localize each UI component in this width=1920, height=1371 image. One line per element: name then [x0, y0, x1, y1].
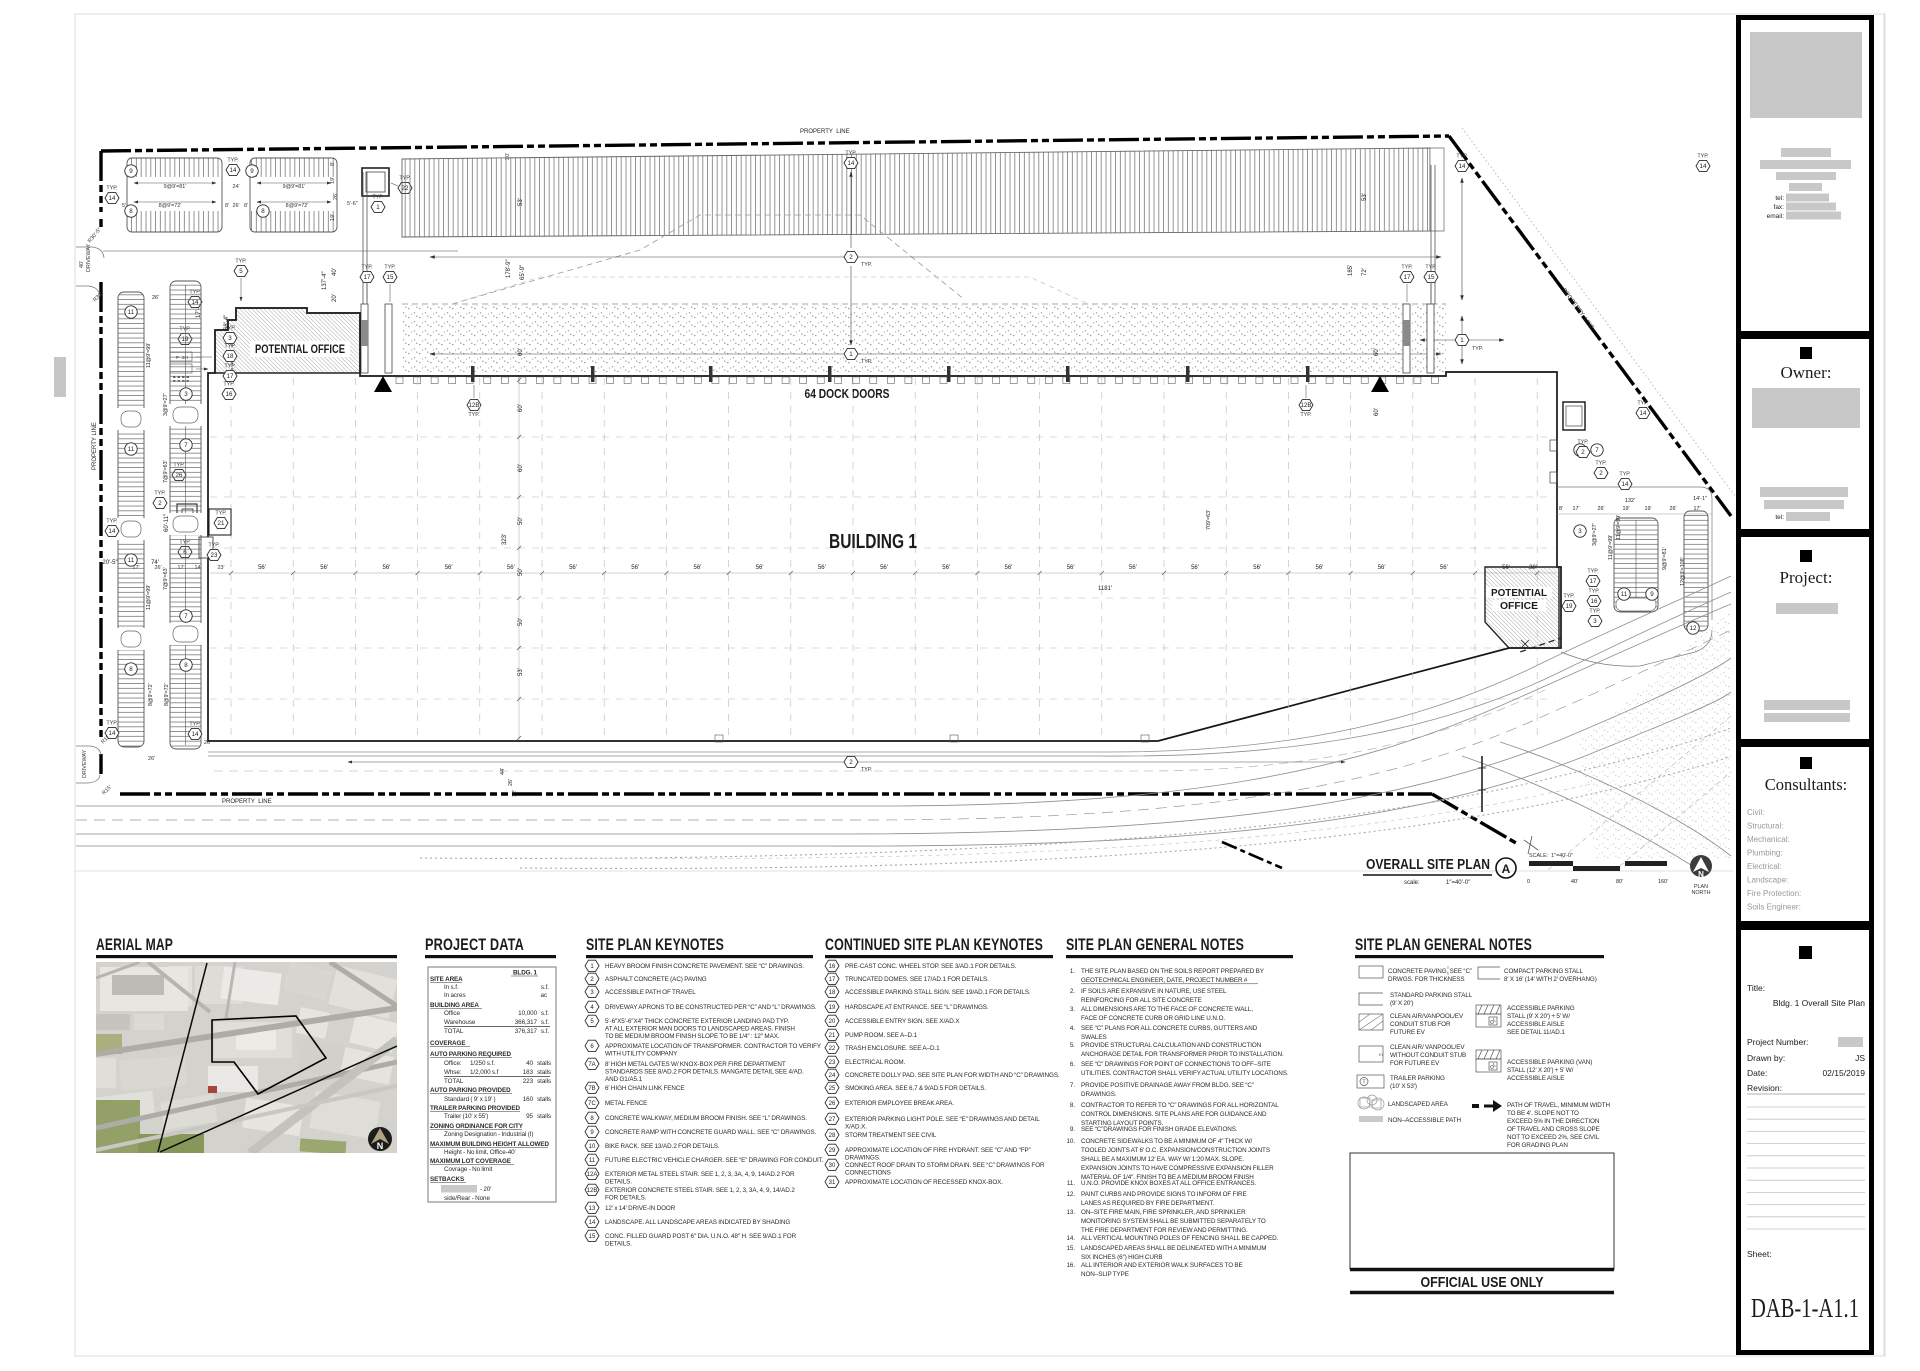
svg-text:s.f.: s.f.	[541, 1019, 549, 1026]
svg-text:HEAVY BROOM FINISH CONCRETE: HEAVY BROOM FINISH CONCRETE PAVEMENT. SE…	[605, 963, 804, 970]
svg-text:19: 19	[1566, 603, 1573, 610]
svg-text:ANCHORAGE DETAIL FOR TRANSF: ANCHORAGE DETAIL FOR TRANSFORMER PRIOR T…	[1081, 1051, 1284, 1058]
svg-text:60′: 60′	[518, 347, 524, 356]
svg-text:SEE “C” PLANS FOR ALL CON: SEE “C” PLANS FOR ALL CONCRETE CURBS, GU…	[1081, 1025, 1258, 1032]
svg-text:TYP.: TYP.	[384, 265, 395, 271]
svg-text:Whse:: Whse:	[444, 1069, 462, 1076]
svg-text:16.: 16.	[1066, 1262, 1075, 1269]
svg-text:56′: 56′	[1004, 565, 1013, 571]
svg-text:REINFORCING FOR ALL SITE C: REINFORCING FOR ALL SITE CONCRETE	[1081, 997, 1202, 1004]
svg-text:Date:: Date:	[1747, 1068, 1767, 1078]
svg-text:3: 3	[1593, 618, 1597, 625]
svg-text:SWALES: SWALES	[1081, 1034, 1107, 1041]
svg-text:STORM TREATMENT SEE CIVIL: STORM TREATMENT SEE CIVIL	[845, 1132, 937, 1139]
svg-text:GEOTECHNICAL ENGINEER, DATE,: GEOTECHNICAL ENGINEER, DATE, PROJECT NUM…	[1081, 977, 1248, 984]
svg-text:7@9′=63′: 7@9′=63′	[163, 460, 169, 483]
svg-text:14.: 14.	[1066, 1235, 1075, 1242]
svg-text:NOT TO EXCEED 2%, SEE CIV: NOT TO EXCEED 2%, SEE CIVIL	[1507, 1134, 1600, 1141]
svg-text:TYP.: TYP.	[1588, 589, 1599, 595]
svg-text:0: 0	[1527, 879, 1530, 885]
svg-text:TYP.: TYP.	[224, 326, 235, 332]
svg-text:6′ HIGH CHAIN LINK FENCE: 6′ HIGH CHAIN LINK FENCE	[605, 1085, 684, 1092]
svg-text:In acres: In acres	[444, 992, 466, 999]
svg-text:ACCESSIBLE PATH OF TRAVEL: ACCESSIBLE PATH OF TRAVEL	[605, 989, 696, 996]
svg-text:TRASH ENCLOSURE. SEE A–D.1: TRASH ENCLOSURE. SEE A–D.1	[845, 1045, 940, 1052]
svg-text:SITE PLAN GENERAL NOTES: SITE PLAN GENERAL NOTES	[1355, 935, 1532, 954]
svg-text:12.: 12.	[1066, 1191, 1075, 1198]
svg-text:SIX INCHES (6″) HIGH CURB: SIX INCHES (6″) HIGH CURB	[1081, 1254, 1163, 1261]
svg-text:7: 7	[184, 442, 188, 449]
svg-text:Warehouse: Warehouse	[444, 1019, 476, 1026]
svg-text:14: 14	[109, 528, 116, 535]
svg-text:ALL VERTICAL MOUNTING POLES: ALL VERTICAL MOUNTING POLES OF FENCING S…	[1081, 1235, 1279, 1242]
svg-text:TYP.: TYP.	[224, 344, 235, 350]
svg-text:5′-6″: 5′-6″	[347, 201, 358, 207]
svg-text:CONCRETE DOLLY PAD. SEE SIT: CONCRETE DOLLY PAD. SEE SITE PLAN FOR WI…	[845, 1072, 1060, 1079]
svg-text:Height - No limit, Office-40′: Height - No limit, Office-40′	[444, 1149, 517, 1156]
svg-text:60′: 60′	[518, 403, 524, 412]
svg-text:email:: email:	[1767, 213, 1785, 220]
svg-text:CONNECT ROOF DRAIN TO STOR: CONNECT ROOF DRAIN TO STORM DRAIN. SEE “…	[845, 1162, 1045, 1169]
svg-text:Standard ( 9′ x 19′ ): Standard ( 9′ x 19′ )	[444, 1096, 496, 1103]
svg-text:50′: 50′	[518, 617, 524, 626]
svg-text:56′: 56′	[320, 565, 329, 571]
svg-text:53′: 53′	[518, 197, 524, 206]
svg-text:BUILDING 1: BUILDING 1	[829, 531, 917, 553]
svg-text:UTILITIES. CONTRACTOR SHALL: UTILITIES. CONTRACTOR SHALL VERIFY ACTUA…	[1081, 1070, 1289, 1077]
svg-text:74′: 74′	[151, 560, 160, 566]
svg-text:STALL (9′ X 20′) + 5′ W/: STALL (9′ X 20′) + 5′ W/	[1507, 1013, 1570, 1020]
svg-text:TYP.: TYP.	[845, 151, 856, 157]
svg-text:NON–SLIP TYPE: NON–SLIP TYPE	[1081, 1271, 1129, 1278]
svg-text:SITE PLAN KEYNOTES: SITE PLAN KEYNOTES	[586, 935, 724, 954]
svg-text:TYP.: TYP.	[215, 511, 226, 517]
svg-text:40′: 40′	[1571, 879, 1578, 885]
svg-text:10,000: 10,000	[518, 1010, 537, 1017]
svg-text:7: 7	[184, 613, 188, 620]
svg-text:LANDSCAPE. ALL LANDSCAPE AR: LANDSCAPE. ALL LANDSCAPE AREAS INDICATED…	[605, 1219, 790, 1226]
svg-text:56′: 56′	[1129, 565, 1138, 571]
svg-text:56′: 56′	[1440, 565, 1449, 571]
svg-text:BUILDING AREA: BUILDING AREA	[430, 1002, 479, 1009]
svg-text:Title:: Title:	[1747, 983, 1765, 993]
svg-text:17: 17	[1404, 274, 1411, 281]
svg-text:376,317: 376,317	[515, 1028, 538, 1035]
svg-text:5′-6″X5′-6″X4″ THICK CONCRET: 5′-6″X5′-6″X4″ THICK CONCRETE EXTERIOR L…	[605, 1018, 789, 1025]
svg-text:STANDARDS SEE 8/AD.2 FOR D: STANDARDS SEE 8/AD.2 FOR DETAILS. MANGAT…	[605, 1069, 804, 1076]
svg-text:12B: 12B	[1300, 402, 1311, 409]
svg-text:56′: 56′	[942, 565, 951, 571]
svg-text:POTENTIAL OFFICE: POTENTIAL OFFICE	[255, 342, 345, 356]
svg-text:TYP.: TYP.	[106, 186, 117, 192]
svg-text:OFFICIAL USE ONLY: OFFICIAL USE ONLY	[1421, 1274, 1544, 1291]
svg-text:Mechanical:: Mechanical:	[1747, 835, 1790, 844]
svg-text:13.: 13.	[1066, 1209, 1075, 1216]
svg-text:TYP.: TYP.	[468, 412, 479, 418]
svg-text:11@9′=99′: 11@9′=99′	[1616, 515, 1622, 540]
svg-text:19′: 19′	[330, 177, 336, 184]
svg-text:MAXIMUM LOT COVERAGE: MAXIMUM LOT COVERAGE	[430, 1158, 511, 1165]
svg-text:15: 15	[387, 274, 394, 281]
svg-text:26: 26	[829, 1101, 836, 1107]
svg-text:EXTERIOR PARKING LIGHT POLE: EXTERIOR PARKING LIGHT POLE. SEE “E” DRA…	[845, 1116, 1040, 1123]
svg-text:TYP.: TYP.	[1563, 594, 1574, 600]
svg-text:ACCESSIBLE PARKING (VAN): ACCESSIBLE PARKING (VAN)	[1507, 1059, 1592, 1066]
svg-text:TYP.: TYP.	[1697, 154, 1708, 160]
svg-text:SITE AREA: SITE AREA	[430, 976, 463, 983]
svg-text:80′: 80′	[1616, 879, 1623, 885]
svg-text:s.f.: s.f.	[541, 1010, 549, 1017]
svg-text:9.: 9.	[1070, 1126, 1075, 1133]
svg-text:SCALE: 1″=40′-0″: SCALE: 1″=40′-0″	[1529, 853, 1573, 859]
svg-text:ASPHALT CONCRETE (AC) PAVIN: ASPHALT CONCRETE (AC) PAVING	[605, 976, 707, 983]
svg-text:11: 11	[128, 557, 135, 564]
svg-text:25: 25	[829, 1086, 836, 1092]
svg-text:16: 16	[226, 391, 233, 398]
svg-text:1181′: 1181′	[1098, 586, 1113, 592]
svg-text:53′: 53′	[518, 667, 524, 676]
svg-text:TYP.: TYP.	[227, 158, 238, 164]
svg-text:TOTAL: TOTAL	[444, 1028, 464, 1035]
svg-text:N: N	[1698, 870, 1704, 879]
svg-text:23: 23	[211, 552, 218, 559]
svg-text:EXPANSION JOINTS TO HAVE C: EXPANSION JOINTS TO HAVE COMPRESSIVE EXP…	[1081, 1165, 1274, 1172]
svg-text:56′: 56′	[1378, 565, 1387, 571]
svg-text:14: 14	[1622, 481, 1629, 488]
svg-text:56′: 56′	[631, 565, 640, 571]
svg-text:8′ X 16′ (14′ WITH 2′ OV: 8′ X 16′ (14′ WITH 2′ OVERHANG)	[1504, 976, 1597, 983]
svg-text:TYP.: TYP.	[1589, 609, 1600, 615]
svg-text:2: 2	[849, 759, 853, 766]
svg-text:9: 9	[129, 168, 133, 175]
svg-text:PATH OF TRAVEL, MINIMUM WI: PATH OF TRAVEL, MINIMUM WIDTH	[1507, 1102, 1611, 1109]
svg-text:14′-1″: 14′-1″	[1693, 496, 1707, 502]
svg-text:U.N.O. PROVIDE KNOX BOXES: U.N.O. PROVIDE KNOX BOXES AT ALL OFFICE …	[1081, 1180, 1257, 1187]
svg-text:MONITORING SYSTEM SHALL BE: MONITORING SYSTEM SHALL BE SUBMITTED SEP…	[1081, 1218, 1266, 1225]
svg-text:6.: 6.	[1070, 1061, 1075, 1068]
svg-text:26′: 26′	[1669, 506, 1676, 512]
svg-text:Sheet:: Sheet:	[1747, 1249, 1772, 1259]
svg-text:TOOLED JOINTS AT 6′ O.C.: TOOLED JOINTS AT 6′ O.C. EXPANSION/CONST…	[1081, 1147, 1270, 1154]
svg-text:TYP.: TYP.	[235, 259, 246, 265]
svg-text:SITE PLAN GENERAL NOTES: SITE PLAN GENERAL NOTES	[1066, 935, 1244, 954]
svg-text:TYP.: TYP.	[372, 195, 383, 201]
svg-text:fax:: fax:	[1774, 204, 1785, 211]
svg-text:19′: 19′	[330, 214, 336, 221]
svg-text:TYP.: TYP.	[1472, 346, 1483, 352]
svg-text:A: A	[1502, 862, 1511, 876]
svg-text:50′: 50′	[518, 516, 524, 525]
svg-text:183: 183	[523, 1069, 534, 1076]
svg-text:53′: 53′	[1362, 192, 1368, 201]
svg-text:EV: EV	[1379, 1053, 1384, 1057]
svg-text:Revision:: Revision:	[1747, 1083, 1782, 1093]
svg-text:FOR GRADING PLAN: FOR GRADING PLAN	[1507, 1142, 1568, 1149]
svg-text:TYP.: TYP.	[106, 721, 117, 727]
svg-text:44′: 44′	[500, 768, 506, 775]
svg-text:10.: 10.	[1066, 1138, 1075, 1145]
svg-text:56′: 56′	[1191, 565, 1200, 571]
svg-text:11@9′=99′: 11@9′=99′	[1608, 535, 1614, 560]
svg-text:s.f.: s.f.	[541, 1028, 549, 1035]
svg-text:Landscape:: Landscape:	[1747, 876, 1788, 885]
svg-text:1: 1	[1460, 337, 1464, 344]
svg-text:SEE DETAIL 11/AD.1: SEE DETAIL 11/AD.1	[1507, 1029, 1565, 1036]
svg-text:9: 9	[1650, 591, 1654, 598]
svg-text:OF TRAVEL AND CROSS SLOPE: OF TRAVEL AND CROSS SLOPE	[1507, 1126, 1600, 1133]
svg-text:185′: 185′	[1348, 264, 1354, 276]
svg-text:64 DOCK DOORS: 64 DOCK DOORS	[805, 387, 890, 401]
svg-text:Soils Engineer:: Soils Engineer:	[1747, 903, 1801, 912]
svg-text:28: 28	[829, 1133, 836, 1139]
svg-text:TYP.: TYP.	[1425, 265, 1436, 271]
svg-text:DETAILS.: DETAILS.	[605, 1241, 632, 1248]
svg-text:FOR DETAILS.: FOR DETAILS.	[605, 1195, 647, 1202]
svg-text:ACCESSIBLE ENTRY SIGN. SEE: ACCESSIBLE ENTRY SIGN. SEE X/AD.X	[845, 1018, 960, 1025]
svg-text:Office: Office	[444, 1010, 460, 1017]
svg-text:12@9′=108′: 12@9′=108′	[1680, 557, 1686, 586]
svg-text:BIKE RACK. SEE 13/AD.2 FOR: BIKE RACK. SEE 13/AD.2 FOR DETAILS.	[605, 1143, 720, 1150]
svg-text:ELECTRICAL ROOM.: ELECTRICAL ROOM.	[845, 1059, 906, 1066]
svg-text:AND G1/A5.1: AND G1/A5.1	[605, 1076, 643, 1083]
svg-text:8′: 8′	[330, 162, 336, 166]
svg-text:3.: 3.	[1070, 1006, 1075, 1013]
svg-text:8′ HIGH METAL GATES W/ KN: 8′ HIGH METAL GATES W/ KNOX-BOX PER FIRE…	[605, 1061, 786, 1068]
svg-text:26′: 26′	[333, 193, 339, 200]
svg-text:8: 8	[129, 208, 133, 215]
svg-text:12: 12	[1690, 625, 1697, 632]
svg-text:1/250 s.f.: 1/250 s.f.	[470, 1060, 495, 1067]
svg-text:19′: 19′	[1644, 506, 1651, 512]
svg-text:13: 13	[589, 1206, 596, 1212]
svg-text:27: 27	[829, 1117, 836, 1123]
svg-text:17′: 17′	[1572, 506, 1579, 512]
svg-text:1/2,000 s.f: 1/2,000 s.f	[470, 1069, 499, 1076]
svg-text:ACCESSIBLE PARKING: ACCESSIBLE PARKING	[1507, 1005, 1575, 1012]
svg-text:NON–ACCESSIBLE PATH: NON–ACCESSIBLE PATH	[1388, 1117, 1462, 1124]
svg-text:8@9′=72′: 8@9′=72′	[148, 683, 154, 706]
svg-text:8: 8	[261, 208, 265, 215]
svg-text:20: 20	[829, 1019, 836, 1025]
svg-text:Fire Protection:: Fire Protection:	[1747, 889, 1801, 898]
svg-text:Covrage - No limit: Covrage - No limit	[444, 1166, 493, 1173]
svg-text:12′: 12′	[512, 790, 518, 797]
svg-text:In s.f.: In s.f.	[444, 984, 459, 991]
svg-text:02/15/2019: 02/15/2019	[1822, 1068, 1865, 1078]
svg-text:4.: 4.	[1070, 1025, 1075, 1032]
svg-text:PUMP ROOM. SEE A–D.1: PUMP ROOM. SEE A–D.1	[845, 1032, 918, 1039]
svg-text:14: 14	[192, 731, 199, 738]
svg-text:CONCRETE SIDEWALKS TO BE A: CONCRETE SIDEWALKS TO BE A MINIMUM OF 4″…	[1081, 1138, 1252, 1145]
svg-text:8@9′=72′: 8@9′=72′	[286, 203, 309, 209]
svg-text:TYP.: TYP.	[1637, 401, 1648, 407]
svg-text:THE SITE PLAN BASED ON TH: THE SITE PLAN BASED ON THE SOILS REPORT …	[1081, 968, 1265, 975]
svg-text:TYP.: TYP.	[224, 364, 235, 370]
svg-text:(10′ X 53′): (10′ X 53′)	[1390, 1083, 1417, 1090]
svg-text:3@9′=27′: 3@9′=27′	[163, 393, 169, 416]
svg-text:11: 11	[1621, 591, 1628, 598]
svg-text:CLEAN AIR/ VANPOOL/EV: CLEAN AIR/ VANPOOL/EV	[1390, 1044, 1465, 1051]
svg-text:26′: 26′	[204, 740, 211, 746]
svg-text:THE FIRE DEPARTMENT FOR RE: THE FIRE DEPARTMENT FOR REVIEW AND PERMI…	[1081, 1227, 1248, 1234]
svg-text:T: T	[1362, 1080, 1365, 1086]
svg-text:ZONING ORDINANCE FOR CITY: ZONING ORDINANCE FOR CITY	[430, 1123, 524, 1130]
svg-text:60′: 60′	[1374, 347, 1380, 356]
svg-text:323′: 323′	[502, 533, 508, 545]
svg-text:14: 14	[1700, 163, 1707, 170]
svg-text:17: 17	[364, 274, 371, 281]
svg-text:20′-5″: 20′-5″	[102, 560, 118, 566]
svg-text:11: 11	[589, 1158, 596, 1164]
svg-text:9@9′=81′: 9@9′=81′	[164, 184, 187, 190]
svg-text:PROPERTY LINE: PROPERTY LINE	[92, 422, 98, 470]
svg-text:Trailer (10′ x 55′): Trailer (10′ x 55′)	[444, 1113, 488, 1120]
svg-text:160: 160	[523, 1096, 534, 1103]
svg-text:TO BE 4′. SLOPE NOT TO: TO BE 4′. SLOPE NOT TO	[1507, 1110, 1579, 1117]
svg-text:95: 95	[526, 1113, 533, 1120]
svg-text:14: 14	[1640, 410, 1647, 417]
svg-text:29: 29	[829, 1148, 836, 1154]
svg-text:40′: 40′	[79, 261, 85, 268]
svg-text:137′-4″: 137′-4″	[322, 271, 328, 290]
svg-text:- 20′: - 20′	[480, 1186, 492, 1193]
svg-text:1.: 1.	[1070, 968, 1075, 975]
svg-text:side/Rear - None: side/Rear - None	[444, 1195, 490, 1202]
svg-text:IF SOILS ARE EXPANSIVE IN: IF SOILS ARE EXPANSIVE IN NATURE, USE ST…	[1081, 988, 1227, 995]
svg-text:SHALL BE A MAXIMUM 12′ EA: SHALL BE A MAXIMUM 12′ EA. WAY W/ 1:20 M…	[1081, 1156, 1244, 1163]
svg-text:24′: 24′	[232, 184, 239, 190]
svg-text:16: 16	[829, 964, 836, 970]
svg-text:14: 14	[848, 160, 855, 167]
svg-text:8′: 8′	[225, 203, 229, 209]
svg-text:ALL INTERIOR AND EXTERIOR: ALL INTERIOR AND EXTERIOR WALK SURFACES …	[1081, 1262, 1243, 1269]
svg-text:TYP.: TYP.	[1401, 265, 1412, 271]
svg-text:DRIVEWAY APRONS TO BE CONS: DRIVEWAY APRONS TO BE CONSTRUCTED PER “C…	[605, 1004, 817, 1011]
svg-text:65′-9″: 65′-9″	[520, 264, 526, 280]
svg-text:9: 9	[250, 168, 254, 175]
svg-text:OFFICE: OFFICE	[1500, 600, 1538, 612]
svg-text:14: 14	[589, 1220, 596, 1226]
svg-text:DETAILS.: DETAILS.	[605, 1179, 632, 1186]
svg-text:PRE-CAST CONC. WHEEL STOP.: PRE-CAST CONC. WHEEL STOP. SEE 3/AD.1 FO…	[845, 963, 1017, 970]
svg-text:12B: 12B	[468, 402, 479, 409]
svg-text:DRIVEWAY: DRIVEWAY	[86, 243, 92, 272]
svg-text:tel:: tel:	[1775, 514, 1784, 521]
svg-text:APPROXIMATE LOCATION OF TRA: APPROXIMATE LOCATION OF TRANSFORMER. CON…	[605, 1043, 822, 1050]
svg-text:7@9′=63′: 7@9′=63′	[163, 567, 169, 590]
svg-text:EXTERIOR CONCRETE STEEL STA: EXTERIOR CONCRETE STEEL STAIR. SEE 1, 2,…	[605, 1187, 795, 1194]
svg-text:DRIVEWAY: DRIVEWAY	[82, 749, 88, 778]
svg-text:11.: 11.	[1067, 1180, 1075, 1187]
svg-text:LANDSCAPED AREAS SHALL BE: LANDSCAPED AREAS SHALL BE DELINEATED WIT…	[1081, 1245, 1266, 1252]
svg-text:366,317: 366,317	[515, 1019, 538, 1026]
svg-text:SEE “C”DRAWINGS FOR FINISH: SEE “C”DRAWINGS FOR FINISH GRADE ELEVATI…	[1081, 1126, 1238, 1133]
svg-text:15.: 15.	[1066, 1245, 1075, 1252]
svg-text:EXTERIOR EMPLOYEE BREAK ARE: EXTERIOR EMPLOYEE BREAK AREA.	[845, 1100, 954, 1107]
svg-text:23′: 23′	[217, 565, 224, 571]
svg-text:Bldg. 1 Overall Site Plan: Bldg. 1 Overall Site Plan	[1773, 998, 1865, 1008]
svg-text:NORTH: NORTH	[1691, 890, 1710, 896]
svg-text:1: 1	[849, 351, 853, 358]
svg-text:8: 8	[184, 662, 188, 669]
svg-text:ACCESSIBLE AISLE: ACCESSIBLE AISLE	[1507, 1021, 1564, 1028]
svg-text:40: 40	[526, 1060, 533, 1067]
svg-text:26′: 26′	[148, 756, 155, 762]
svg-text:CONTROL DIMENSIONS. SITE: CONTROL DIMENSIONS. SITE PLANS ARE FOR G…	[1081, 1111, 1267, 1118]
svg-text:CONC. FILLED GUARD POST 6″: CONC. FILLED GUARD POST 6″ DIA. U.N.O. 4…	[605, 1233, 797, 1240]
svg-text:9@9′=81′: 9@9′=81′	[283, 184, 306, 190]
svg-text:TYP.: TYP.	[861, 767, 872, 773]
svg-text:56′: 56′	[693, 565, 702, 571]
svg-text:7: 7	[1595, 447, 1599, 454]
svg-text:BLDG. 1: BLDG. 1	[513, 970, 538, 977]
svg-text:EXCEED 5% IN THE DIRECTION: EXCEED 5% IN THE DIRECTION	[1507, 1118, 1600, 1125]
svg-text:26′: 26′	[232, 203, 239, 209]
svg-text:2.: 2.	[1070, 988, 1075, 995]
svg-text:56′: 56′	[1067, 565, 1076, 571]
svg-text:14: 14	[1459, 163, 1466, 170]
svg-text:APPROXIMATE LOCATION OF REC: APPROXIMATE LOCATION OF RECESSED KNOX-BO…	[845, 1179, 1003, 1186]
svg-text:11: 11	[128, 446, 135, 453]
svg-text:HARDSCAPE AT ENTRANCE. SEE: HARDSCAPE AT ENTRANCE. SEE “L” DRAWINGS.	[845, 1004, 989, 1011]
svg-text:COMPACT PARKING STALL: COMPACT PARKING STALL	[1504, 968, 1584, 975]
svg-text:22: 22	[829, 1046, 836, 1052]
svg-text:COVERAGE: COVERAGE	[430, 1040, 465, 1047]
svg-text:JS: JS	[1855, 1053, 1865, 1063]
svg-text:MAXIMUM BUILDING HEIGHT ALLOWE: MAXIMUM BUILDING HEIGHT ALLOWED	[430, 1141, 550, 1148]
svg-text:AERIAL MAP: AERIAL MAP	[96, 935, 173, 954]
svg-text:FUTURE EV: FUTURE EV	[1390, 1029, 1426, 1036]
svg-text:TYP.: TYP.	[1595, 461, 1606, 467]
svg-text:31: 31	[829, 1180, 836, 1186]
svg-text:X/AD.X.: X/AD.X.	[845, 1124, 867, 1131]
svg-text:178′-9″: 178′-9″	[506, 259, 512, 278]
svg-text:PROVIDE POSITIVE DRAINAGE A: PROVIDE POSITIVE DRAINAGE AWAY FROM BLDG…	[1081, 1082, 1254, 1089]
svg-text:PAINT CURBS AND PROVIDE SI: PAINT CURBS AND PROVIDE SIGNS TO INFORM …	[1081, 1191, 1247, 1198]
svg-text:PROVIDE STRUCTURAL CALCULATI: PROVIDE STRUCTURAL CALCULATION AND CONST…	[1081, 1042, 1262, 1049]
svg-text:LANES AS REQUIRED BY FIRE: LANES AS REQUIRED BY FIRE DEPARTMENT.	[1081, 1200, 1214, 1207]
svg-text:CONCRETE RAMP WITH CONCRETE: CONCRETE RAMP WITH CONCRETE GUARD WALL. …	[605, 1129, 817, 1136]
svg-text:20′: 20′	[505, 153, 511, 160]
svg-text:DRAWINGS.: DRAWINGS.	[845, 1155, 881, 1162]
svg-text:12B: 12B	[587, 1188, 598, 1194]
svg-text:15: 15	[1428, 274, 1435, 281]
svg-text:14: 14	[230, 167, 237, 174]
svg-text:scale:: scale:	[1404, 880, 1420, 886]
svg-text:TOTAL: TOTAL	[444, 1078, 464, 1085]
svg-text:CONNECTIONS: CONNECTIONS	[845, 1170, 891, 1177]
svg-text:8′: 8′	[1559, 506, 1563, 512]
svg-text:56′: 56′	[756, 565, 765, 571]
svg-text:SETBACKS: SETBACKS	[430, 1176, 464, 1183]
svg-text:11@9′=99′: 11@9′=99′	[146, 343, 152, 368]
svg-text:TRAILER PARKING PROVIDED: TRAILER PARKING PROVIDED	[430, 1105, 520, 1112]
svg-text:17: 17	[227, 373, 234, 380]
svg-text:5: 5	[239, 268, 243, 275]
svg-text:METAL FENCE: METAL FENCE	[605, 1100, 647, 1107]
svg-text:56′: 56′	[1253, 565, 1262, 571]
svg-text:8′: 8′	[244, 203, 248, 209]
svg-text:160′: 160′	[1658, 879, 1668, 885]
svg-text:TYP.: TYP.	[361, 265, 372, 271]
svg-text:Project Number:: Project Number:	[1747, 1037, 1808, 1047]
svg-text:30: 30	[829, 1163, 836, 1169]
svg-text:ACCESSIBLE PARKING STALL SI: ACCESSIBLE PARKING STALL SIGN. SEE 19/AD…	[845, 989, 1031, 996]
svg-text:SMOKING AREA. SEE 6,7 & 9: SMOKING AREA. SEE 6,7 & 9/AD.5 FOR DETAI…	[845, 1085, 986, 1092]
svg-text:3: 3	[1578, 528, 1582, 535]
svg-text:ac: ac	[540, 992, 547, 999]
svg-text:N: N	[377, 1141, 384, 1151]
